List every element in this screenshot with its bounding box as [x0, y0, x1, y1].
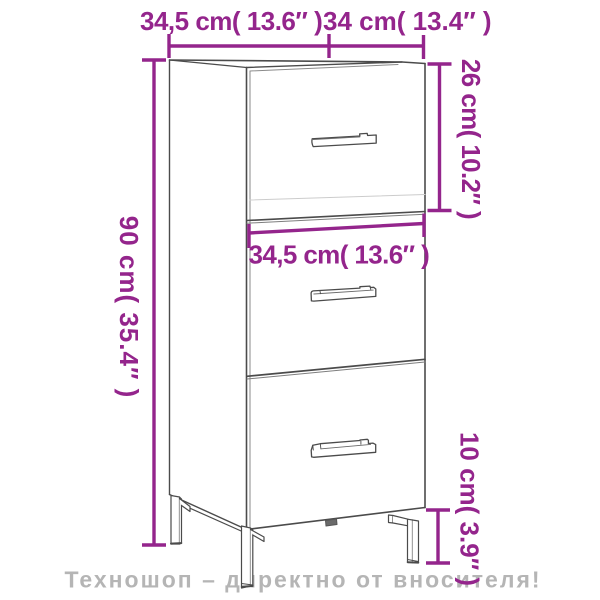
svg-text:34 cm( 13.4″ ): 34 cm( 13.4″ ) — [323, 6, 492, 36]
svg-text:10 cm( 3.9″ ): 10 cm( 3.9″ ) — [455, 432, 485, 586]
svg-text:34,5 cm( 13.6″ ): 34,5 cm( 13.6″ ) — [140, 6, 322, 36]
svg-text:34,5 cm( 13.6″ ): 34,5 cm( 13.6″ ) — [249, 240, 430, 270]
svg-text:26 cm( 10.2″ ): 26 cm( 10.2″ ) — [456, 59, 486, 219]
svg-text:90 cm( 35.4″ ): 90 cm( 35.4″ ) — [114, 216, 144, 399]
